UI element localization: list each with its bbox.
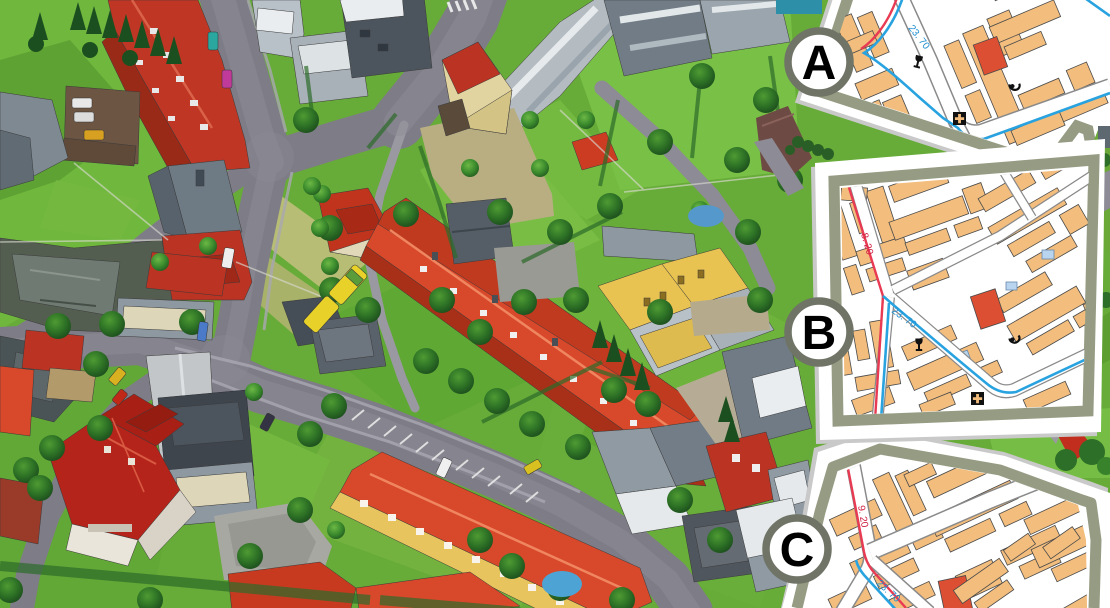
- svg-text:✚: ✚: [973, 392, 983, 406]
- svg-text:✚: ✚: [955, 112, 965, 126]
- svg-text:A: A: [802, 37, 837, 90]
- svg-text:C: C: [780, 524, 815, 577]
- svg-text:B: B: [802, 307, 837, 360]
